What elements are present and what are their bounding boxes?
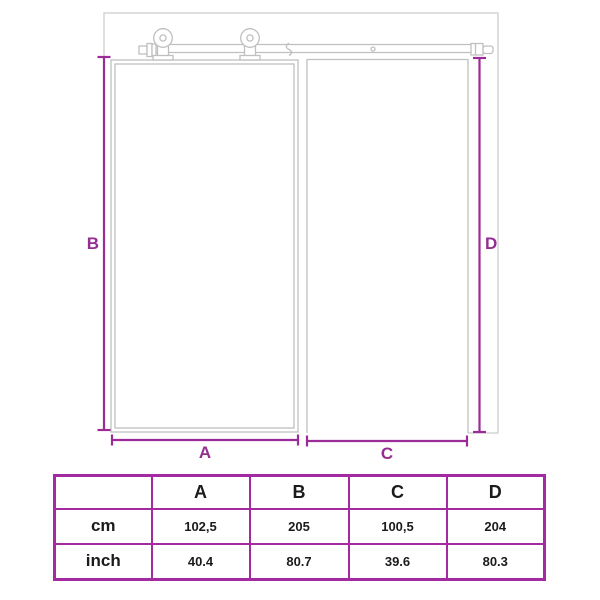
dimension-a-label: A (199, 443, 211, 462)
cell-cm-c: 100,5 (349, 509, 447, 544)
cell-inch-d: 80.3 (447, 544, 545, 580)
table-header-d: D (447, 476, 545, 509)
table-row: inch 40.4 80.7 39.6 80.3 (55, 544, 545, 580)
cell-cm-b: 205 (250, 509, 349, 544)
roller-hub-icon (247, 35, 253, 41)
cell-inch-c: 39.6 (349, 544, 447, 580)
roller-hanger-left (153, 29, 173, 60)
table-header-b: B (250, 476, 349, 509)
cell-inch-b: 80.7 (250, 544, 349, 580)
rail-end-cap-right (471, 44, 483, 56)
cell-inch-a: 40.4 (152, 544, 250, 580)
table-header-c: C (349, 476, 447, 509)
sliding-rail-assembly (139, 43, 493, 57)
table-header-a: A (152, 476, 250, 509)
roller-mount-plate (153, 56, 173, 61)
rail-bar (155, 45, 472, 53)
dimension-d-label: D (485, 234, 497, 253)
door-panel (111, 60, 298, 432)
table-header-unit (55, 476, 152, 509)
cell-cm-d: 204 (447, 509, 545, 544)
roller-mount-plate (240, 56, 260, 61)
roller-hub-icon (160, 35, 166, 41)
rail-screw-hole-icon (371, 47, 375, 51)
rail-end-stop-left-tip (139, 46, 147, 54)
cell-cm-a: 102,5 (152, 509, 250, 544)
doorway-opening (307, 60, 468, 434)
sliding-door-diagram: B D A C (0, 0, 600, 470)
row-label-cm: cm (55, 509, 152, 544)
roller-hanger-right (240, 29, 260, 60)
rail-end-stop-left-flange (147, 44, 152, 57)
rail-end-stop-left-collar (152, 44, 156, 56)
rail-end-cap-right-nub (483, 46, 493, 54)
door-panel-outer (111, 60, 298, 432)
dimensions-table: A B C D cm 102,5 205 100,5 204 inch 40.4… (53, 474, 546, 581)
table-header-row: A B C D (55, 476, 545, 509)
row-label-inch: inch (55, 544, 152, 580)
dimension-b-label: B (87, 234, 99, 253)
table-row: cm 102,5 205 100,5 204 (55, 509, 545, 544)
dimension-c-label: C (381, 444, 393, 463)
product-dimension-sheet: B D A C A B C D cm 102,5 205 100,5 204 i… (0, 0, 600, 600)
